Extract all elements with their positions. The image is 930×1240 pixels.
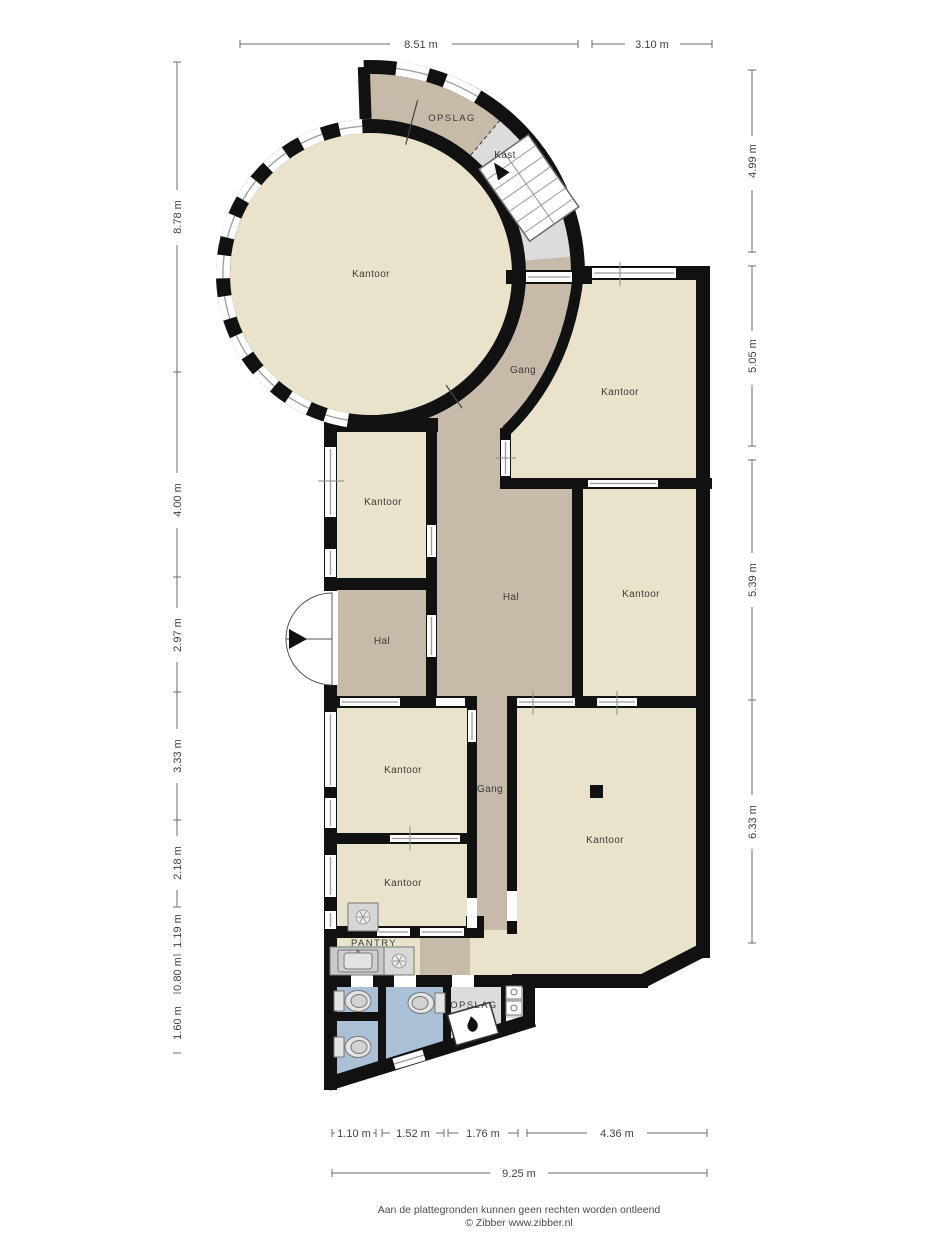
dim-top-1: 8.51 m <box>404 39 438 51</box>
dim-right-4: 6.33 m <box>747 805 759 839</box>
dim-left-3: 2.97 m <box>172 618 184 652</box>
dim-left-2: 4.00 m <box>172 483 184 517</box>
dim-bottom-4: 4.36 m <box>600 1128 634 1140</box>
room-label-kast: Kast <box>494 150 516 161</box>
dim-left-5: 2.18 m <box>172 846 184 880</box>
toilet-icon <box>408 993 445 1014</box>
dim-right-2: 5.05 m <box>747 339 759 373</box>
room-label-kantoor-top-right: Kantoor <box>601 387 639 398</box>
room-label-kantoor-mid-right: Kantoor <box>622 589 660 600</box>
dim-bottom-total: 9.25 m <box>502 1168 536 1180</box>
dim-bottom-1: 1.10 m <box>337 1128 371 1140</box>
room-label-kantoor-circle: Kantoor <box>352 269 390 280</box>
dim-left-1: 8.78 m <box>172 200 184 234</box>
meter-box <box>506 986 522 999</box>
room-label-pantry: PANTRY <box>351 938 397 949</box>
meter-box <box>506 1001 522 1015</box>
footer-disclaimer: Aan de plattegronden kunnen geen rechten… <box>378 1204 661 1216</box>
dims-bottom: 1.10 m 1.52 m 1.76 m 4.36 m 9.25 m <box>332 1128 707 1180</box>
room-label-hal-entrance: Hal <box>374 636 390 647</box>
ac-fan-icon <box>356 910 370 924</box>
dim-left-6: 1.19 m <box>172 914 184 948</box>
room-label-kantoor-lower-left-2: Kantoor <box>384 878 422 889</box>
dim-bottom-3: 1.76 m <box>466 1128 500 1140</box>
big-office-door-gap <box>507 891 517 921</box>
dim-top-2: 3.10 m <box>635 39 669 51</box>
gang-opening <box>477 696 507 708</box>
toilet-icon <box>334 1037 371 1058</box>
dim-left-4: 3.33 m <box>172 739 184 773</box>
dim-left-7: 0.80 m <box>172 957 184 991</box>
column <box>590 785 603 798</box>
dims-right: 4.99 m 5.05 m 5.39 m 6.33 m <box>747 70 759 943</box>
floorplan-svg: Kantoor OPSLAG Kast Gang Kantoor Kantoor… <box>0 0 930 1240</box>
room-label-kantoor-big: Kantoor <box>586 835 624 846</box>
room-label-opslag-bottom: OPSLAG <box>450 1000 497 1011</box>
footer: Aan de plattegronden kunnen geen rechten… <box>378 1204 661 1229</box>
room-label-gang-top: Gang <box>510 365 536 376</box>
room-label-kantoor-left: Kantoor <box>364 497 402 508</box>
room-label-kantoor-lower-left-1: Kantoor <box>384 765 422 776</box>
footer-credit: © Zibber www.zibber.nl <box>465 1217 573 1229</box>
dim-left-8: 1.60 m <box>172 1006 184 1040</box>
vent-fan-icon <box>392 954 406 968</box>
dim-bottom-2: 1.52 m <box>396 1128 430 1140</box>
room-label-gang-lower: Gang <box>477 784 503 795</box>
dim-right-3: 5.39 m <box>747 563 759 597</box>
room-label-hal-center: Hal <box>503 592 519 603</box>
dims-left: 8.78 m 4.00 m 2.97 m 3.33 m 2.18 m 1.19 … <box>172 62 184 1053</box>
toilet-icon <box>334 991 371 1012</box>
floorplan-page: Kantoor OPSLAG Kast Gang Kantoor Kantoor… <box>0 0 930 1240</box>
room-label-opslag-top: OPSLAG <box>428 113 475 124</box>
dim-right-1: 4.99 m <box>747 144 759 178</box>
